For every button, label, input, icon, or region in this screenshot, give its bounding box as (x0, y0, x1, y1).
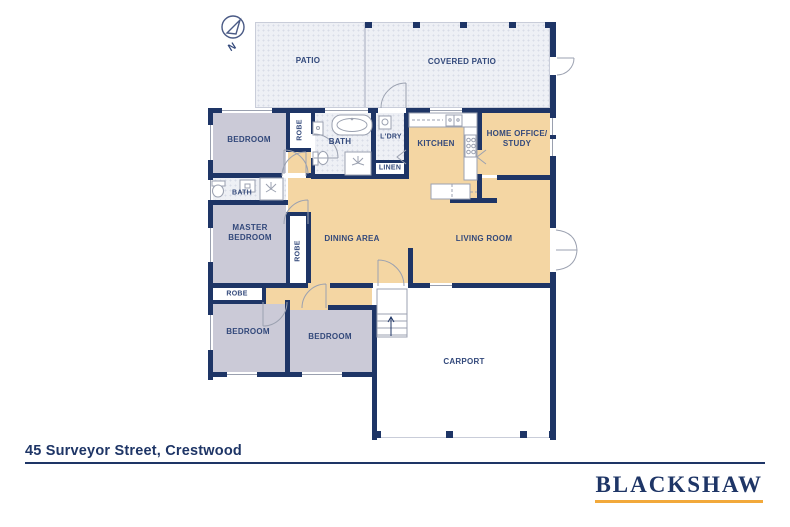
master-bedroom-floor (213, 205, 286, 283)
door-gap (311, 134, 315, 158)
patio-post (545, 22, 554, 28)
patio-post (413, 22, 420, 28)
room-label-bedroom-sw: BEDROOM (226, 327, 270, 337)
wall-dining-stub (408, 248, 413, 288)
carport-post (446, 431, 453, 438)
room-label-robe-master: ROBE (295, 240, 302, 261)
door-gap (282, 173, 306, 178)
room-label-laundry: L'DRY (380, 134, 402, 143)
wall-bedroom-divider (285, 300, 290, 377)
wall-robe-top-left (286, 108, 290, 152)
wall-bath-left-b (311, 158, 315, 174)
window (208, 125, 213, 160)
room-label-linen: LINEN (379, 165, 401, 174)
north-compass-icon: N (222, 16, 244, 54)
wall-bath-right (371, 108, 376, 179)
room-label-covered-patio: COVERED PATIO (428, 57, 496, 67)
wall-bedroom-sw-top (213, 300, 266, 304)
window (227, 372, 257, 377)
door-gap (378, 108, 406, 113)
room-label-home-office: HOME OFFICE/ STUDY (487, 129, 548, 149)
room-label-living: LIVING ROOM (456, 234, 513, 244)
carport-post (374, 431, 381, 438)
room-label-bath-ensuite: BATH (232, 190, 252, 199)
wall-bedroom-s-top (328, 305, 372, 310)
door-gap (550, 228, 556, 272)
address-title: 45 Surveyor Street, Crestwood (25, 443, 242, 459)
window (208, 315, 213, 350)
footer-divider (25, 462, 765, 464)
wall-office-bottom (497, 175, 550, 180)
home-office-door-floor (477, 150, 482, 175)
wall-robe-master-right (306, 212, 311, 283)
wall-linen-top (376, 160, 404, 163)
patio-post (365, 22, 372, 28)
wall-bath-row-bottom (311, 174, 408, 179)
room-label-master-bedroom: MASTER BEDROOM (228, 223, 272, 243)
window (222, 108, 272, 113)
carport-post (520, 431, 527, 438)
wall-bath-left-a (311, 108, 315, 134)
hallway-floor (288, 152, 311, 216)
wall-robe-master-left (286, 212, 290, 283)
window (208, 228, 213, 262)
patio-post (509, 22, 516, 28)
room-label-bedroom-top: BEDROOM (227, 135, 271, 145)
room-label-patio: PATIO (296, 56, 321, 66)
wall-entry-left (330, 283, 373, 288)
bedroom-sw-floor (213, 304, 285, 372)
room-label-robe-top: ROBE (297, 119, 304, 140)
window (430, 283, 452, 288)
room-label-bedroom-s: BEDROOM (308, 332, 352, 342)
floor-plan-page: N (0, 0, 790, 527)
wall-kitchen-stub-h (450, 198, 497, 203)
brand-logo: BLACKSHAW (595, 472, 763, 503)
room-label-bath-main: BATH (329, 137, 352, 147)
wall-master-bottom (208, 283, 308, 288)
window (208, 180, 213, 200)
patio-post (460, 22, 467, 28)
window (302, 372, 342, 377)
wall-laundry-right (404, 108, 409, 179)
wall-kitchen-stub-v (477, 174, 482, 203)
wall-carport-left (372, 305, 377, 440)
room-label-carport: CARPORT (443, 357, 484, 367)
wall-kitchen-office-divider (477, 108, 482, 150)
room-label-robe-box: ROBE (226, 291, 247, 300)
svg-text:N: N (226, 41, 238, 54)
door-gap (550, 57, 556, 75)
carport-post (549, 431, 556, 438)
wall-robe-top-bottom (286, 148, 311, 152)
wall-ensuite-bottom (208, 200, 288, 205)
window (430, 108, 462, 113)
room-label-kitchen: KITCHEN (417, 139, 454, 149)
window (550, 139, 556, 156)
window (325, 108, 368, 113)
room-label-dining: DINING AREA (324, 234, 379, 244)
patio-divider-line (365, 22, 366, 108)
window (550, 118, 556, 135)
living-dining-floor (311, 178, 550, 283)
